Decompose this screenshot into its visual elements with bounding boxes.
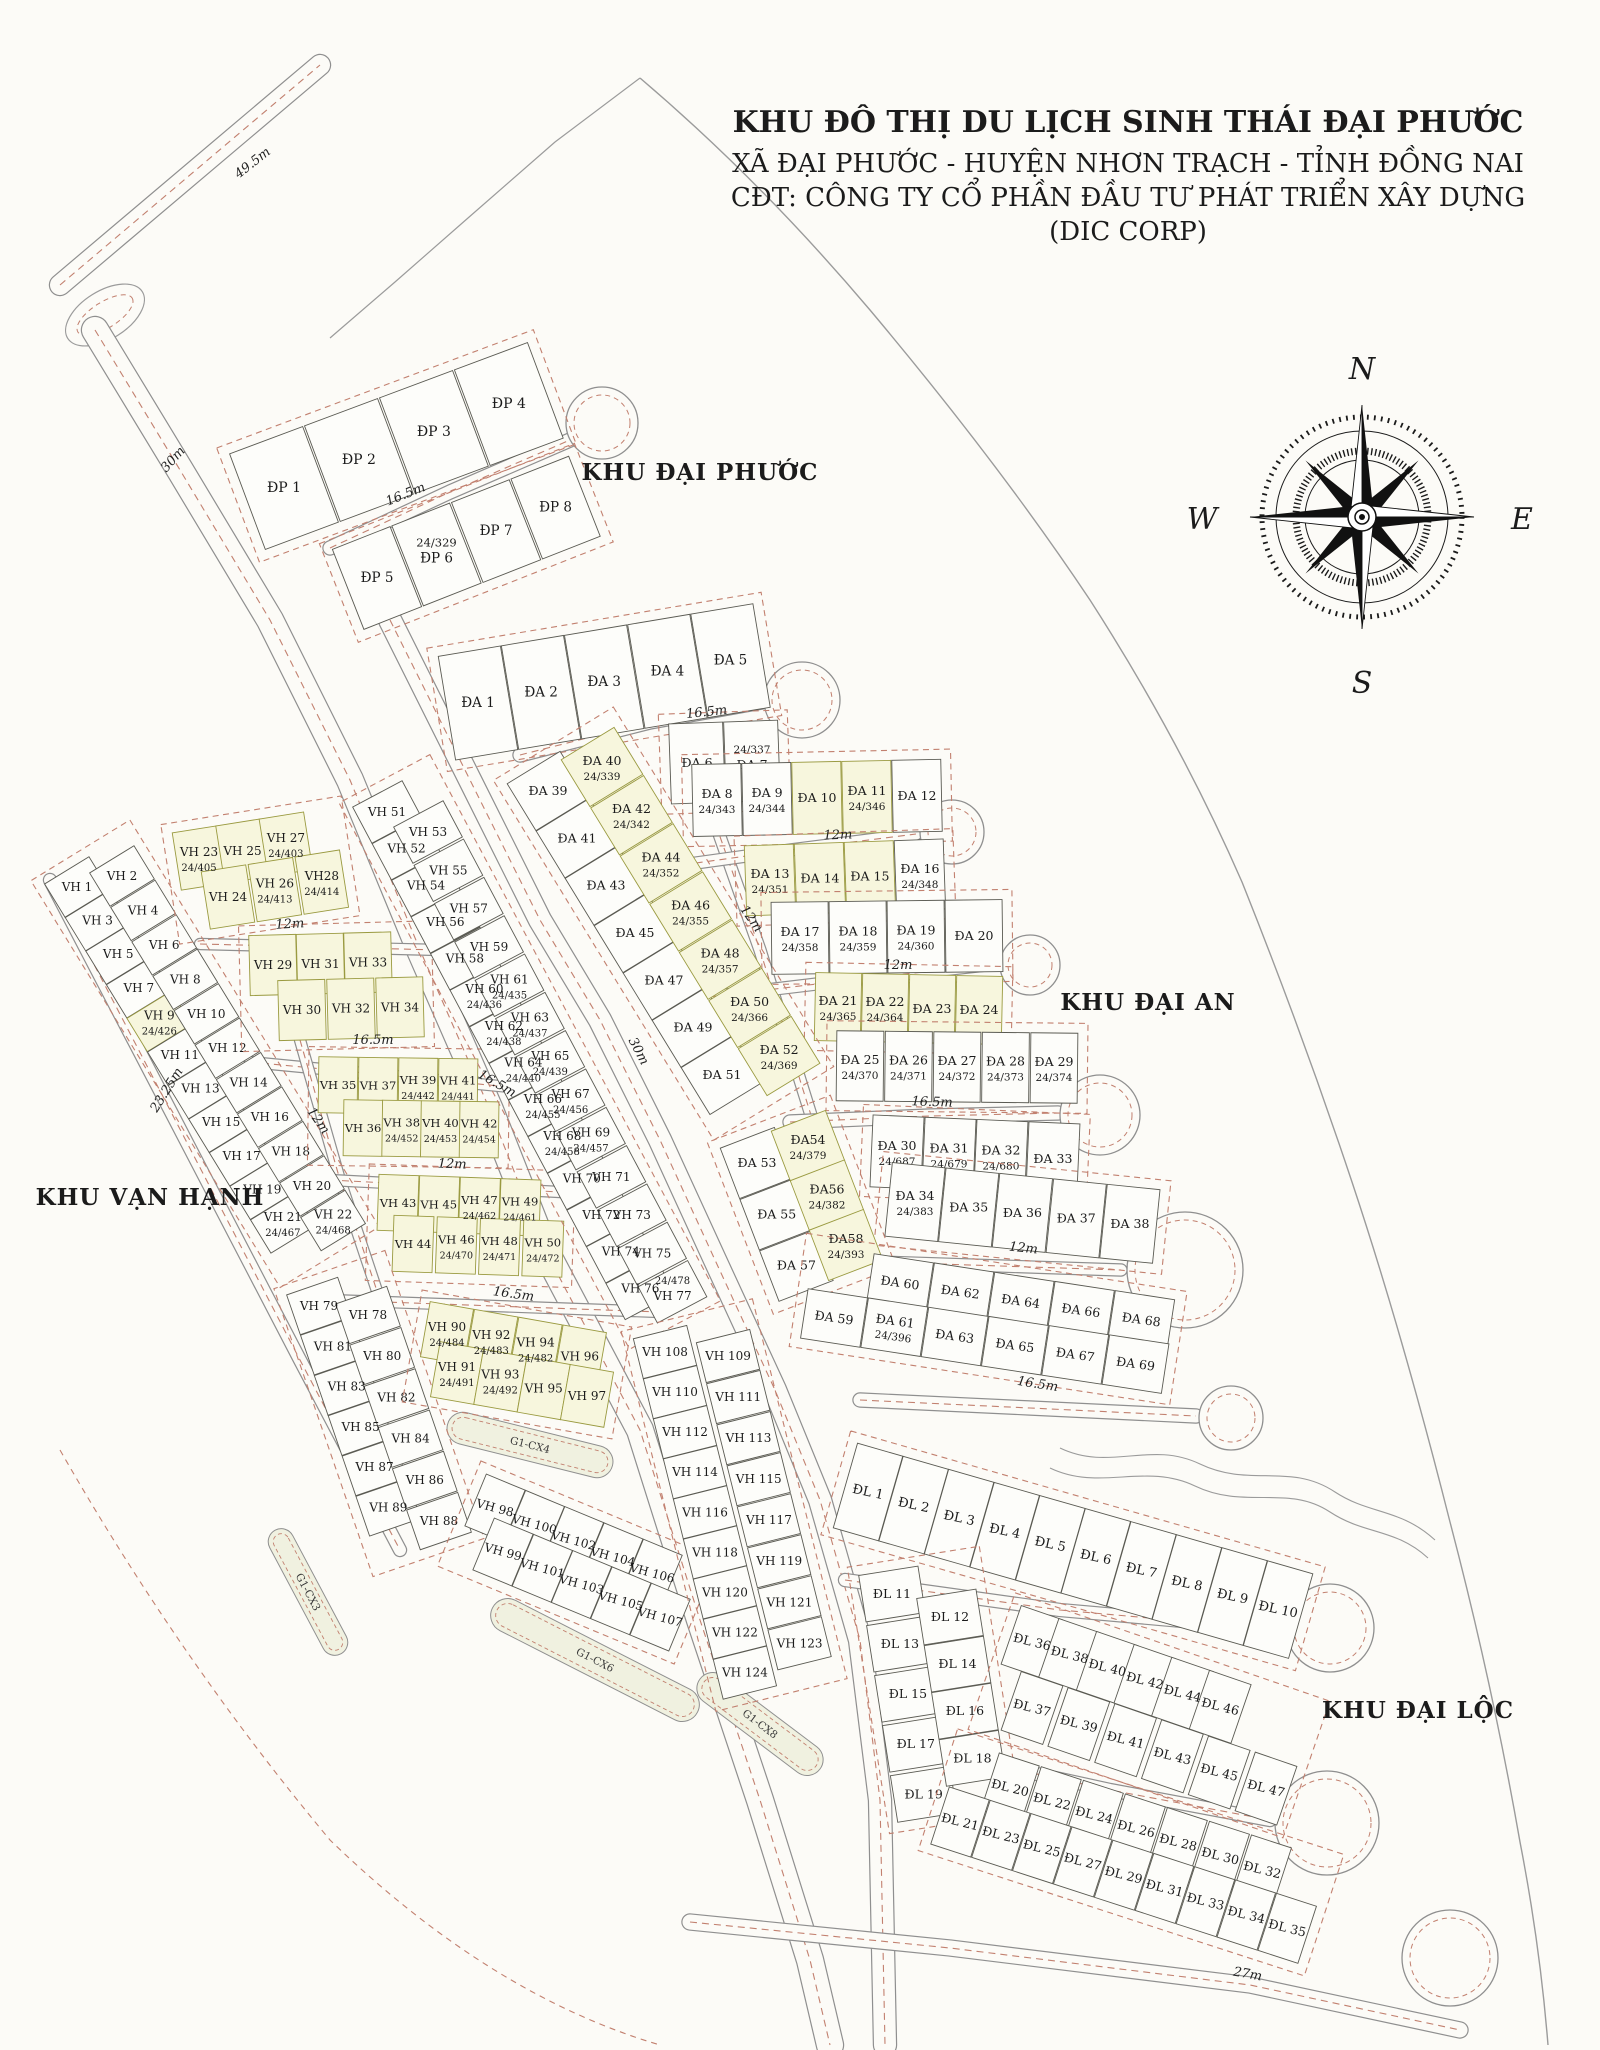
svg-text:ĐA 24: ĐA 24 — [960, 1002, 999, 1017]
lot-label-VH-86: VH 86 — [405, 1473, 444, 1487]
svg-text:VH 109: VH 109 — [704, 1349, 751, 1363]
lot-label-VH-35: VH 35 — [319, 1078, 357, 1092]
lot-label-ĐP-4: ĐP 4 — [492, 396, 526, 412]
svg-text:ĐP 6: ĐP 6 — [420, 551, 453, 567]
svg-text:ĐA 38: ĐA 38 — [1110, 1216, 1149, 1231]
svg-text:VH 53: VH 53 — [408, 825, 447, 839]
svg-text:24/439: 24/439 — [533, 1067, 568, 1078]
lot-label-VH-5: VH 5 — [102, 947, 134, 961]
lot-label-VH-89: VH 89 — [368, 1500, 407, 1514]
lot-label-ĐL-11: ĐL 11 — [873, 1586, 911, 1601]
lot-label-ĐP-7: ĐP 7 — [480, 523, 513, 539]
svg-text:VH 48: VH 48 — [480, 1234, 518, 1248]
svg-text:24/382: 24/382 — [809, 1200, 846, 1212]
lot-label-ĐP-3: ĐP 3 — [417, 424, 451, 440]
svg-text:ĐA 30: ĐA 30 — [878, 1138, 917, 1153]
svg-text:24/355: 24/355 — [672, 916, 709, 928]
lot-label-VH-113: VH 113 — [725, 1431, 772, 1445]
lot-label-VH-77: 24/478VH 77 — [652, 1276, 691, 1303]
svg-text:VH 95: VH 95 — [524, 1381, 563, 1395]
dimension-label-10: 12m — [275, 916, 305, 932]
lot-label-VH-30: VH 30 — [282, 1003, 321, 1017]
compass-hub-center — [1359, 514, 1365, 520]
lot-label-VH-84: VH 84 — [390, 1432, 430, 1446]
lot-label-ĐA-57: ĐA 57 — [777, 1258, 816, 1273]
lot-label-VH-10: VH 10 — [186, 1007, 225, 1021]
svg-text:ĐA 50: ĐA 50 — [730, 994, 769, 1009]
svg-text:ĐA 9: ĐA 9 — [751, 785, 782, 800]
dimension-label-13: 12m — [437, 1157, 466, 1173]
svg-text:VH 32: VH 32 — [331, 1002, 370, 1016]
svg-text:VH 90: VH 90 — [427, 1320, 466, 1334]
svg-text:VH 35: VH 35 — [319, 1078, 357, 1092]
svg-text:ĐA 53: ĐA 53 — [738, 1155, 777, 1170]
lot-label-VH-122: VH 122 — [711, 1626, 758, 1640]
lot-label-ĐL-16: ĐL 16 — [946, 1703, 984, 1718]
lot-label-ĐA-41: ĐA 41 — [558, 830, 597, 845]
svg-text:24/484: 24/484 — [429, 1338, 464, 1349]
svg-text:ĐA 20: ĐA 20 — [955, 928, 994, 943]
lot-label-ĐL-18: ĐL 18 — [953, 1750, 991, 1765]
lot-label-ĐA-1: ĐA 1 — [461, 695, 495, 711]
svg-text:VH 112: VH 112 — [661, 1425, 708, 1439]
zone-label-3: KHU ĐẠI LỘC — [1322, 1696, 1514, 1724]
svg-text:ĐA 34: ĐA 34 — [896, 1188, 935, 1203]
svg-text:VH 44: VH 44 — [394, 1237, 432, 1251]
lot-label-VH-2: VH 2 — [106, 869, 138, 883]
svg-text:VH 118: VH 118 — [691, 1545, 738, 1559]
lot-label-VH-15: VH 15 — [201, 1115, 240, 1129]
svg-text:24/370: 24/370 — [842, 1070, 879, 1082]
svg-text:ĐA 13: ĐA 13 — [751, 866, 790, 881]
lot-label-ĐA-10: ĐA 10 — [798, 790, 837, 805]
lot-label-ĐA-15: ĐA 15 — [850, 869, 889, 884]
svg-text:24/379: 24/379 — [790, 1150, 827, 1162]
svg-text:VH 42: VH 42 — [460, 1117, 498, 1131]
svg-text:ĐA 2: ĐA 2 — [524, 684, 558, 700]
svg-text:VH 8: VH 8 — [169, 972, 201, 986]
cul-de-sac — [1275, 1771, 1379, 1875]
lot-label-ĐL-14: ĐL 14 — [938, 1656, 976, 1671]
dimension-label-3: 16.5m — [685, 703, 728, 722]
lot-label-VH-109: VH 109 — [704, 1349, 751, 1363]
master-plan-map: G1-CX3G1-CX4G1-CX6G1-CX8 ĐP 1ĐP 2ĐP 3ĐP … — [0, 0, 1600, 2050]
svg-text:VH 6: VH 6 — [148, 938, 180, 952]
svg-text:ĐA 3: ĐA 3 — [587, 674, 621, 690]
svg-text:ĐA 51: ĐA 51 — [703, 1067, 742, 1082]
lot-label-VH-52: VH 52 — [386, 842, 425, 856]
lot-label-ĐA-12: ĐA 12 — [898, 788, 937, 803]
lot-label-ĐA-49: ĐA 49 — [674, 1020, 713, 1035]
svg-text:24/442: 24/442 — [401, 1091, 434, 1102]
svg-text:VH 93: VH 93 — [480, 1368, 519, 1382]
lot-label-ĐA-61: 24/396ĐA 61 — [873, 1311, 916, 1346]
svg-text:VH 69: VH 69 — [571, 1126, 610, 1140]
svg-text:VH 2: VH 2 — [106, 869, 138, 883]
lot-label-VH-32: VH 32 — [331, 1002, 370, 1016]
svg-text:VH 49: VH 49 — [501, 1194, 539, 1208]
lot-label-VH-75: VH 75 — [632, 1247, 671, 1261]
svg-text:24/441: 24/441 — [441, 1092, 474, 1103]
svg-text:VH 84: VH 84 — [390, 1432, 430, 1446]
svg-text:VH 13: VH 13 — [180, 1082, 219, 1096]
svg-text:VH 89: VH 89 — [368, 1500, 407, 1514]
svg-text:ĐA 52: ĐA 52 — [760, 1042, 799, 1057]
svg-text:ĐA 36: ĐA 36 — [1003, 1205, 1042, 1220]
svg-text:24/359: 24/359 — [840, 941, 877, 953]
svg-text:VH 50: VH 50 — [523, 1236, 561, 1250]
svg-text:24/373: 24/373 — [987, 1072, 1024, 1084]
svg-text:VH 113: VH 113 — [725, 1431, 772, 1445]
svg-text:VH 33: VH 33 — [348, 956, 387, 970]
svg-text:VH 94: VH 94 — [515, 1336, 555, 1350]
svg-text:VH 123: VH 123 — [776, 1636, 823, 1650]
lot-label-VH-33: VH 33 — [348, 956, 387, 970]
svg-text:ĐL 12: ĐL 12 — [931, 1609, 969, 1624]
dimension-label-11: 16.5m — [352, 1033, 393, 1048]
lot-label-ĐA-24: ĐA 24 — [960, 1002, 999, 1017]
svg-text:24/483: 24/483 — [474, 1346, 509, 1357]
svg-text:VH 41: VH 41 — [439, 1074, 477, 1088]
lot-label-ĐL-13: ĐL 13 — [881, 1636, 919, 1651]
dimension-label-0: 49.5m — [231, 145, 274, 183]
lot-label-VH-29: VH 29 — [253, 958, 292, 972]
lot-label-VH-17: VH 17 — [222, 1149, 261, 1163]
svg-text:VH28: VH28 — [304, 869, 339, 883]
cul-de-sac — [566, 387, 638, 459]
svg-text:24/351: 24/351 — [752, 884, 789, 896]
svg-text:24/435: 24/435 — [492, 990, 527, 1001]
svg-text:VH 79: VH 79 — [299, 1299, 338, 1313]
lot-label-VH-110: VH 110 — [651, 1385, 698, 1399]
svg-text:VH 20: VH 20 — [292, 1179, 331, 1193]
svg-text:VH 45: VH 45 — [419, 1197, 457, 1211]
svg-text:24/437: 24/437 — [512, 1029, 547, 1040]
zone-label-2: KHU VẠN HẠNH — [36, 1184, 265, 1211]
lot-label-VH-7: VH 7 — [123, 981, 155, 995]
svg-text:VH 116: VH 116 — [681, 1505, 728, 1519]
svg-text:24/403: 24/403 — [268, 849, 303, 860]
lot-label-VH-4: VH 4 — [127, 903, 159, 917]
lot-label-VH-78: VH 78 — [348, 1308, 387, 1322]
cul-de-sac — [1402, 1910, 1498, 2006]
svg-text:VH 27: VH 27 — [266, 831, 305, 845]
svg-text:VH 119: VH 119 — [755, 1554, 802, 1568]
svg-text:VH 77: VH 77 — [652, 1289, 691, 1303]
svg-text:ĐA 10: ĐA 10 — [798, 790, 837, 805]
lot-label-VH-3: VH 3 — [81, 914, 113, 928]
lot-label-VH-1: VH 1 — [61, 880, 93, 894]
svg-text:ĐA58: ĐA58 — [828, 1231, 863, 1246]
svg-text:VH 21: VH 21 — [263, 1210, 302, 1224]
svg-text:VH 43: VH 43 — [379, 1196, 417, 1210]
svg-text:24/348: 24/348 — [901, 879, 938, 891]
svg-text:ĐL 16: ĐL 16 — [946, 1703, 984, 1718]
svg-text:24/343: 24/343 — [699, 804, 736, 816]
svg-text:VH 114: VH 114 — [671, 1465, 718, 1479]
svg-text:24/478: 24/478 — [655, 1276, 690, 1287]
lot-label-VH-11: VH 11 — [160, 1048, 199, 1062]
lot-label-VH-73: VH 73 — [612, 1208, 651, 1222]
svg-text:ĐA 40: ĐA 40 — [583, 753, 622, 768]
svg-text:ĐA 19: ĐA 19 — [897, 923, 936, 938]
lot-label-VH-80: VH 80 — [362, 1349, 401, 1363]
svg-text:ĐA 35: ĐA 35 — [949, 1200, 988, 1215]
svg-text:ĐP 5: ĐP 5 — [361, 570, 394, 586]
svg-text:ĐP 7: ĐP 7 — [480, 523, 513, 539]
svg-text:ĐA 25: ĐA 25 — [841, 1052, 880, 1067]
lot-label-VH-55: VH 55 — [428, 863, 467, 877]
svg-text:ĐA 4: ĐA 4 — [651, 663, 685, 679]
svg-text:24/372: 24/372 — [939, 1071, 976, 1083]
svg-text:VH 82: VH 82 — [376, 1390, 415, 1404]
svg-text:VH 121: VH 121 — [765, 1595, 812, 1609]
lot-label-VH-56: VH 56 — [425, 915, 464, 929]
lot-label-VH-119: VH 119 — [755, 1554, 802, 1568]
svg-text:VH 80: VH 80 — [362, 1349, 401, 1363]
lot-label-VH-57: VH 57 — [449, 902, 488, 916]
svg-text:24/337: 24/337 — [734, 744, 771, 756]
lot-label-VH-114: VH 114 — [671, 1465, 718, 1479]
block-vh43_50 — [365, 1164, 575, 1288]
svg-text:24/468: 24/468 — [316, 1226, 351, 1237]
svg-text:VH 23: VH 23 — [179, 845, 218, 859]
lot-label-VH-118: VH 118 — [691, 1545, 738, 1559]
lot-label-VH-124: VH 124 — [721, 1666, 768, 1680]
title-line-1: KHU ĐÔ THỊ DU LỊCH SINH THÁI ĐẠI PHƯỚC — [733, 104, 1524, 140]
svg-text:ĐA 15: ĐA 15 — [850, 869, 889, 884]
svg-text:VH 12: VH 12 — [207, 1041, 246, 1055]
svg-text:ĐA 32: ĐA 32 — [981, 1143, 1020, 1158]
lot-label-VH-116: VH 116 — [681, 1505, 728, 1519]
title-line-4: (DIC CORP) — [1049, 217, 1207, 247]
svg-text:VH 108: VH 108 — [641, 1345, 688, 1359]
svg-text:24/344: 24/344 — [749, 803, 786, 815]
svg-text:24/491: 24/491 — [439, 1378, 474, 1389]
svg-text:ĐL 15: ĐL 15 — [889, 1686, 927, 1701]
road-2 — [60, 65, 320, 285]
svg-text:ĐA 28: ĐA 28 — [986, 1054, 1025, 1069]
svg-text:VH 34: VH 34 — [380, 1000, 420, 1014]
svg-text:ĐA54: ĐA54 — [790, 1132, 825, 1147]
lot-label-VH-44: VH 44 — [394, 1237, 432, 1251]
svg-text:24/371: 24/371 — [890, 1071, 927, 1083]
svg-text:VH 71: VH 71 — [591, 1170, 630, 1184]
lot-label-VH-12: VH 12 — [207, 1041, 246, 1055]
lot-label-VH-120: VH 120 — [701, 1585, 748, 1599]
lot-label-ĐA-51: ĐA 51 — [703, 1067, 742, 1082]
boundary-north — [330, 78, 640, 338]
dimension-label-4: 12m — [823, 828, 852, 844]
lot-label-ĐL-12: ĐL 12 — [931, 1609, 969, 1624]
lot-label-ĐA-20: ĐA 20 — [955, 928, 994, 943]
lot-label-ĐA-33: ĐA 33 — [1033, 1151, 1072, 1166]
svg-text:VH 31: VH 31 — [300, 957, 339, 971]
svg-text:VH 18: VH 18 — [271, 1145, 310, 1159]
svg-text:VH 25: VH 25 — [222, 844, 261, 858]
svg-text:ĐL 11: ĐL 11 — [873, 1586, 911, 1601]
svg-text:24/352: 24/352 — [643, 867, 680, 879]
svg-text:24/339: 24/339 — [584, 771, 621, 783]
svg-text:VH 29: VH 29 — [253, 958, 292, 972]
svg-text:ĐA56: ĐA56 — [809, 1182, 844, 1197]
svg-text:ĐA 29: ĐA 29 — [1035, 1054, 1074, 1069]
svg-text:ĐA 57: ĐA 57 — [777, 1258, 816, 1273]
lot-label-VH-20: VH 20 — [292, 1179, 331, 1193]
svg-text:ĐA 21: ĐA 21 — [819, 993, 858, 1008]
svg-text:ĐA 42: ĐA 42 — [612, 801, 651, 816]
lot-label-VH-71: VH 71 — [591, 1170, 630, 1184]
lot-label-ĐA-43: ĐA 43 — [587, 878, 626, 893]
svg-text:ĐA 41: ĐA 41 — [558, 830, 597, 845]
svg-text:VH 91: VH 91 — [437, 1360, 476, 1374]
svg-text:VH 52: VH 52 — [386, 842, 425, 856]
lot-label-VH-34: VH 34 — [380, 1000, 420, 1014]
svg-text:24/364: 24/364 — [867, 1012, 904, 1024]
svg-text:VH 57: VH 57 — [449, 902, 488, 916]
lot-label-VH-31: VH 31 — [300, 957, 339, 971]
svg-text:VH 22: VH 22 — [313, 1208, 352, 1222]
svg-text:24/492: 24/492 — [483, 1386, 518, 1397]
lot-label-ĐA-35: ĐA 35 — [949, 1200, 988, 1215]
svg-text:24/426: 24/426 — [142, 1026, 177, 1037]
svg-text:VH 38: VH 38 — [382, 1116, 420, 1130]
zone-label-0: KHU ĐẠI PHƯỚC — [582, 459, 819, 486]
svg-text:VH 47: VH 47 — [460, 1193, 498, 1207]
svg-text:VH 81: VH 81 — [313, 1339, 352, 1353]
svg-text:VH 96: VH 96 — [560, 1349, 599, 1363]
svg-text:ĐL 13: ĐL 13 — [881, 1636, 919, 1651]
svg-text:VH 10: VH 10 — [186, 1007, 225, 1021]
lot-label-VH-81: VH 81 — [313, 1339, 352, 1353]
title-line-3: CĐT: CÔNG TY CỔ PHẦN ĐẦU TƯ PHÁT TRIỂN X… — [731, 177, 1525, 213]
svg-text:24/366: 24/366 — [731, 1012, 768, 1024]
svg-text:24/472: 24/472 — [526, 1254, 559, 1265]
svg-text:ĐA 27: ĐA 27 — [938, 1053, 977, 1068]
svg-text:VH 87: VH 87 — [354, 1460, 393, 1474]
lot-label-VH-59: VH 59 — [469, 940, 508, 954]
svg-text:ĐA 11: ĐA 11 — [848, 783, 887, 798]
svg-text:ĐA 12: ĐA 12 — [898, 788, 937, 803]
cul-de-sac — [1000, 935, 1060, 995]
svg-text:VH 7: VH 7 — [123, 981, 155, 995]
lot-label-VH-14: VH 14 — [229, 1076, 269, 1090]
svg-text:VH 37: VH 37 — [359, 1079, 397, 1093]
svg-text:VH 85: VH 85 — [340, 1420, 379, 1434]
svg-text:ĐA 43: ĐA 43 — [587, 878, 626, 893]
lot-label-VH-121: VH 121 — [765, 1595, 812, 1609]
lot-label-ĐL-15: ĐL 15 — [889, 1686, 927, 1701]
svg-text:ĐA 22: ĐA 22 — [866, 994, 905, 1009]
lot-label-VH-97: VH 97 — [567, 1389, 606, 1403]
svg-text:VH 5: VH 5 — [102, 947, 134, 961]
lot-label-VH-83: VH 83 — [327, 1380, 366, 1394]
lot-label-VH-8: VH 8 — [169, 972, 201, 986]
svg-text:VH 11: VH 11 — [160, 1048, 199, 1062]
svg-text:24/369: 24/369 — [761, 1060, 798, 1072]
lot-label-ĐP-2: ĐP 2 — [342, 452, 376, 468]
svg-text:VH 122: VH 122 — [711, 1626, 758, 1640]
lot-label-VH-25: VH 25 — [222, 844, 261, 858]
compass-west-label: W — [1187, 502, 1220, 537]
compass-east-label: E — [1510, 502, 1533, 537]
svg-text:VH 26: VH 26 — [255, 877, 294, 891]
lot-label-VH-18: VH 18 — [271, 1145, 310, 1159]
lot-label-VH-45: VH 45 — [419, 1197, 457, 1211]
svg-text:ĐA 18: ĐA 18 — [839, 923, 878, 938]
lot-label-VH-13: VH 13 — [180, 1082, 219, 1096]
lot-label-VH-79: VH 79 — [299, 1299, 338, 1313]
lot-label-ĐA-39: ĐA 39 — [529, 783, 568, 798]
lot-label-ĐL-17: ĐL 17 — [897, 1736, 935, 1751]
zone-label-1: KHU ĐẠI AN — [1060, 989, 1235, 1016]
svg-text:24/457: 24/457 — [573, 1144, 608, 1155]
svg-text:VH 88: VH 88 — [419, 1514, 458, 1528]
svg-text:ĐA 46: ĐA 46 — [671, 898, 710, 913]
svg-text:ĐA 33: ĐA 33 — [1033, 1151, 1072, 1166]
svg-text:ĐA 5: ĐA 5 — [714, 653, 748, 669]
road-11 — [860, 1386, 1263, 1450]
svg-text:ĐL 14: ĐL 14 — [938, 1656, 976, 1671]
lot-label-ĐP-1: ĐP 1 — [267, 480, 301, 496]
svg-text:24/342: 24/342 — [613, 819, 650, 831]
green-strip-G1-CX3: G1-CX3 — [264, 1524, 353, 1660]
svg-text:VH 9: VH 9 — [143, 1008, 175, 1022]
svg-text:24/454: 24/454 — [462, 1135, 495, 1146]
svg-text:VH 40: VH 40 — [421, 1116, 459, 1130]
svg-text:VH 36: VH 36 — [344, 1121, 382, 1135]
title-line-2: XÃ ĐẠI PHƯỚC - HUYỆN NHƠN TRẠCH - TỈNH Đ… — [732, 144, 1524, 179]
svg-text:24/346: 24/346 — [849, 801, 886, 813]
svg-text:VH 78: VH 78 — [348, 1308, 387, 1322]
svg-text:VH 67: VH 67 — [550, 1087, 589, 1101]
svg-text:24/462: 24/462 — [463, 1211, 496, 1222]
svg-text:ĐA 26: ĐA 26 — [889, 1053, 928, 1068]
lot-label-ĐA-4: ĐA 4 — [651, 663, 685, 679]
svg-text:ĐA 49: ĐA 49 — [674, 1020, 713, 1035]
svg-text:VH 39: VH 39 — [399, 1073, 437, 1087]
lot-label-VH-95: VH 95 — [524, 1381, 563, 1395]
lot-label-VH-117: VH 117 — [745, 1513, 792, 1527]
svg-text:VH 51: VH 51 — [367, 805, 406, 819]
svg-text:VH 30: VH 30 — [282, 1003, 321, 1017]
svg-text:VH 97: VH 97 — [567, 1389, 606, 1403]
svg-text:24/453: 24/453 — [424, 1134, 457, 1145]
svg-text:VH 17: VH 17 — [222, 1149, 261, 1163]
svg-text:24/357: 24/357 — [702, 964, 739, 976]
lot-label-ĐP-6: 24/329ĐP 6 — [416, 536, 456, 567]
svg-text:ĐP 2: ĐP 2 — [342, 452, 376, 468]
lot-label-ĐA-38: ĐA 38 — [1110, 1216, 1149, 1231]
svg-text:VH 55: VH 55 — [428, 863, 467, 877]
svg-text:24/470: 24/470 — [440, 1251, 473, 1262]
svg-text:VH 110: VH 110 — [651, 1385, 698, 1399]
lot-label-ĐA-23: ĐA 23 — [913, 1001, 952, 1016]
lot-label-VH-53: VH 53 — [408, 825, 447, 839]
svg-text:ĐA 37: ĐA 37 — [1057, 1210, 1096, 1225]
svg-text:ĐA 44: ĐA 44 — [642, 849, 681, 864]
svg-text:VH 117: VH 117 — [745, 1513, 792, 1527]
svg-text:ĐA 55: ĐA 55 — [757, 1206, 796, 1221]
lot-label-ĐA-2: ĐA 2 — [524, 684, 558, 700]
lot-label-VH-123: VH 123 — [776, 1636, 823, 1650]
svg-text:ĐP 8: ĐP 8 — [539, 500, 572, 516]
dimension-label-6: 12m — [884, 958, 913, 973]
lot-label-VH-96: VH 96 — [560, 1349, 599, 1363]
lot-label-VH-37: VH 37 — [359, 1079, 397, 1093]
svg-text:ĐL 18: ĐL 18 — [953, 1750, 991, 1765]
svg-text:24/413: 24/413 — [257, 895, 292, 906]
